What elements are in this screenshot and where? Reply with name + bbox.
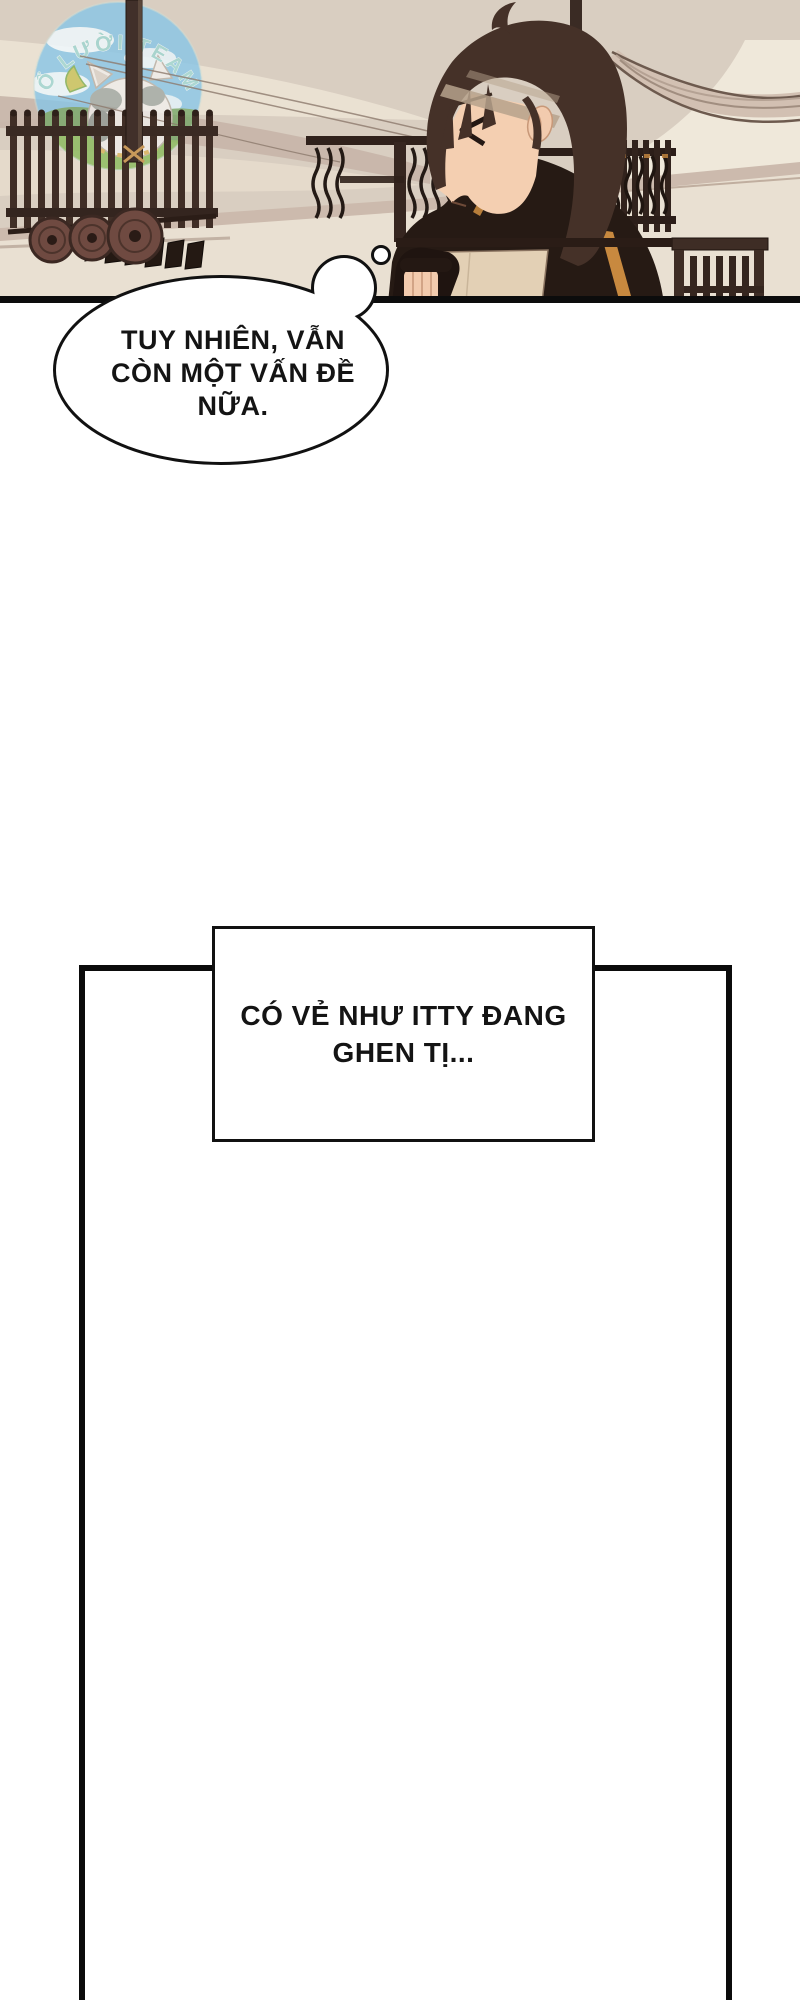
shields bbox=[30, 209, 162, 263]
caption-line-2: GHEN TỊ... bbox=[240, 1034, 566, 1071]
caption-text: CÓ VẺ NHƯ ITTY ĐANG GHEN TỊ... bbox=[240, 997, 566, 1071]
held-object bbox=[444, 250, 548, 303]
thought-bubble-line-1: TUY NHIÊN, VẪN bbox=[73, 324, 393, 357]
comic-page: Ổ LƯỜI TEAM bbox=[0, 0, 800, 2000]
thought-bubble-line-2: CÒN MỘT VẤN ĐỀ bbox=[73, 357, 393, 390]
front-rail bbox=[396, 238, 672, 247]
art-panel: Ổ LƯỜI TEAM bbox=[0, 0, 800, 303]
thought-bubble-text: TUY NHIÊN, VẪN CÒN MỘT VẤN ĐỀ NỮA. bbox=[73, 324, 393, 423]
panel-border-line bbox=[0, 296, 800, 303]
caption-box: CÓ VẺ NHƯ ITTY ĐANG GHEN TỊ... bbox=[212, 926, 595, 1142]
tent-pole-left bbox=[124, 0, 144, 162]
caption-line-1: CÓ VẺ NHƯ ITTY ĐANG bbox=[240, 997, 566, 1034]
thought-bubble-line-3: NỮA. bbox=[73, 390, 393, 423]
